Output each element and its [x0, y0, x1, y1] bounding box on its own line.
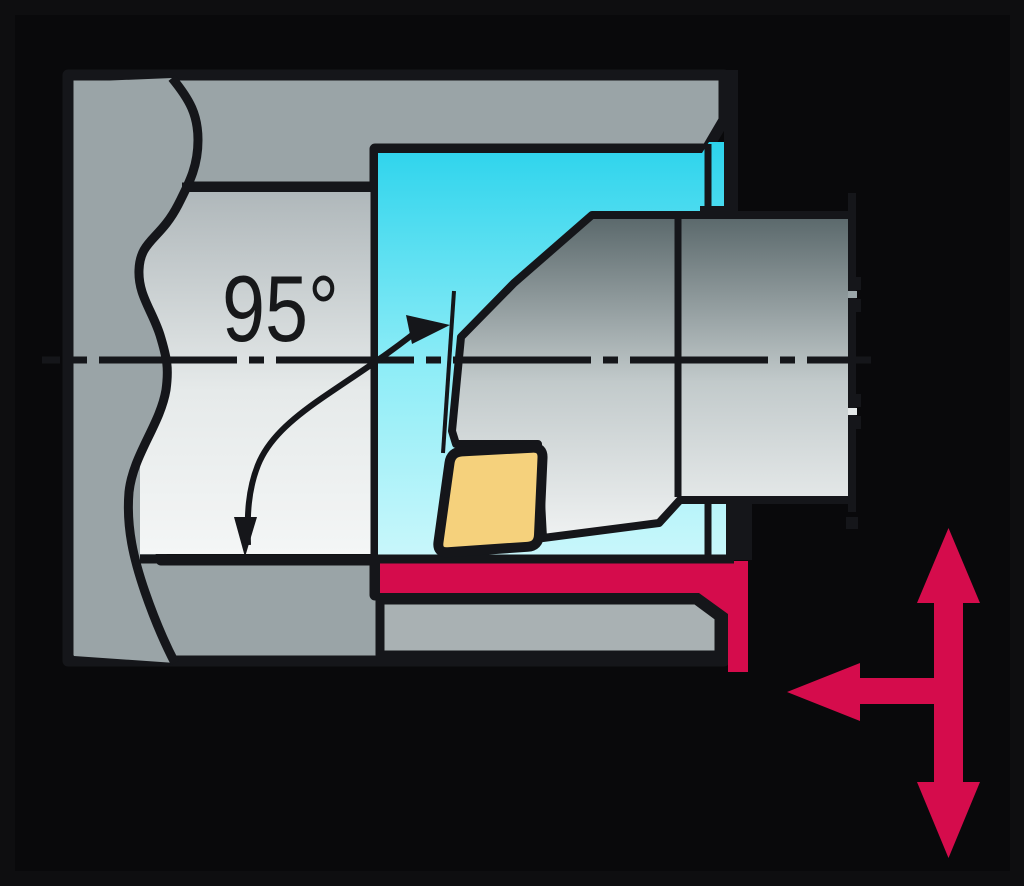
workpiece-lower-wall [380, 600, 719, 655]
boring-operation-diagram: 95° [0, 0, 1024, 886]
cutting-insert [438, 448, 542, 553]
break-notch [848, 408, 857, 415]
break-notch [848, 291, 857, 298]
break-tick [850, 299, 861, 312]
break-tick [850, 394, 861, 407]
bore-far-wall-surface [140, 192, 371, 554]
break-tick [850, 277, 861, 290]
end-face-corner-outline [726, 498, 752, 560]
break-tick [850, 416, 861, 429]
workpiece-right-outline [724, 70, 738, 214]
angle-label: 95° [222, 256, 339, 361]
diagram-stage: 95° [0, 0, 1024, 886]
break-tick-bottom [846, 517, 858, 529]
